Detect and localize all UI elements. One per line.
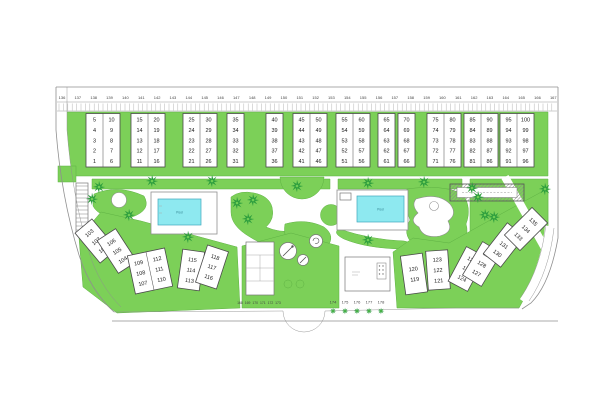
path-loop [112, 193, 127, 208]
unit-number: 100 [521, 118, 530, 124]
unit-block: 55545352516059585756 [336, 114, 370, 168]
unit-number: 69 [403, 128, 409, 134]
unit-number: 97 [522, 149, 528, 155]
parking-ticks [59, 104, 552, 111]
tree-icon [291, 180, 303, 192]
unit-blocks-top: 5432110987615141312112019181716252423222… [86, 114, 534, 168]
pond-circle [430, 202, 439, 211]
unit-number: 39 [271, 128, 277, 134]
unit-number: 81 [469, 159, 475, 165]
unit-block: 6564636261 [378, 114, 395, 168]
unit-block: 4039383736 [266, 114, 283, 168]
unit-number: 46 [315, 159, 321, 165]
street-lot-number: 147 [233, 95, 240, 100]
unit-block: 54321109876 [86, 114, 120, 168]
unit-number: 9 [110, 128, 113, 134]
unit-number: 37 [271, 149, 277, 155]
unit-number: 93 [505, 138, 511, 144]
street-lot-number: 167 [550, 95, 557, 100]
street-lot-number: 150 [281, 95, 288, 100]
unit-number: 83 [469, 138, 475, 144]
street-lot-number: 157 [391, 95, 398, 100]
unit-number: 16 [153, 159, 159, 165]
unit-number: 45 [298, 118, 304, 124]
bottom-lot-number: 177 [366, 300, 373, 305]
unit-number: 61 [383, 159, 389, 165]
street-lot-number: 149 [265, 95, 272, 100]
street-lot-number: 146 [217, 95, 224, 100]
unit-number: 96 [522, 159, 528, 165]
tree-icon [93, 181, 105, 193]
tree-icon [362, 177, 374, 189]
unit-block: 75747372718079787776 [427, 114, 461, 168]
unit-number: 30 [205, 118, 211, 124]
unit-number: 55 [341, 118, 347, 124]
tree-icon [472, 191, 484, 203]
unit-number: 31 [232, 159, 238, 165]
unit-number: 32 [232, 149, 238, 155]
unit-number: 115 [188, 257, 198, 264]
unit-number: 1 [93, 159, 96, 165]
street-lot-number: 158 [407, 95, 414, 100]
unit-number: 120 [408, 266, 418, 273]
lawn-half-disc [280, 177, 324, 199]
unit-number: 27 [205, 149, 211, 155]
street-lot-number: 162 [471, 95, 478, 100]
unit-number: 36 [271, 159, 277, 165]
unit-number: 51 [341, 159, 347, 165]
street-lot-number: 139 [106, 95, 113, 100]
unit-number: 48 [315, 138, 321, 144]
street-lot-number: 148 [249, 95, 256, 100]
pool-right-label: Pool [377, 208, 384, 212]
unit-number: 14 [136, 128, 142, 134]
tree-icon [206, 175, 218, 187]
unit-number: 12 [136, 149, 142, 155]
unit-number: 28 [205, 138, 211, 144]
street-lot-number: 138 [90, 95, 97, 100]
street-lot-number: 161 [455, 95, 462, 100]
tree-icon [86, 193, 98, 205]
unit-number: 42 [298, 149, 304, 155]
unit-number: 91 [505, 159, 511, 165]
unit-block: 123122121 [426, 250, 451, 290]
bush-icon [284, 280, 292, 288]
unit-number: 80 [449, 118, 455, 124]
unit-number: 5 [93, 118, 96, 124]
bottom-lot-number: 171 [260, 301, 266, 305]
unit-block: 959493929110099989796 [500, 114, 534, 168]
unit-number: 11 [137, 159, 143, 165]
ramp-top-right [450, 184, 524, 201]
unit-number: 52 [341, 149, 347, 155]
unit-number: 92 [505, 149, 511, 155]
bottom-lot-number: 170 [252, 301, 258, 305]
unit-number: 94 [505, 128, 511, 134]
street-lot-number: 155 [360, 95, 367, 100]
unit-number: 74 [432, 128, 438, 134]
unit-number: 50 [315, 118, 321, 124]
unit-block: 15141312112019181716 [131, 114, 165, 168]
unit-block: 3534333231 [227, 114, 244, 168]
unit-number: 119 [410, 277, 420, 284]
unit-number: 113 [185, 278, 195, 285]
unit-number: 114 [186, 267, 196, 274]
bottom-lot-number: 169 [245, 301, 251, 305]
unit-number: 60 [358, 118, 364, 124]
unit-number: 90 [486, 118, 492, 124]
unit-number: 23 [188, 138, 194, 144]
unit-block: 25242322213029282726 [183, 114, 217, 168]
unit-number: 25 [188, 118, 194, 124]
tree-icon [539, 183, 551, 195]
unit-number: 54 [341, 128, 347, 134]
tree-icon [146, 175, 158, 187]
tree-icon [242, 213, 254, 225]
unit-number: 86 [486, 159, 492, 165]
unit-number: 4 [93, 128, 96, 134]
unit-number: 15 [136, 118, 142, 124]
unit-number: 53 [341, 138, 347, 144]
street-lot-number: 159 [423, 95, 430, 100]
street-lot-number: 156 [376, 95, 383, 100]
unit-number: 89 [486, 128, 492, 134]
tree-icon [342, 308, 349, 315]
unit-number: 43 [298, 138, 304, 144]
unit-number: 49 [315, 128, 321, 134]
tree-icon [488, 211, 500, 223]
unit-number: 41 [298, 159, 304, 165]
unit-number: 38 [271, 138, 277, 144]
unit-number: 33 [232, 138, 238, 144]
tree-icon [466, 182, 478, 194]
tree-icon [123, 209, 135, 221]
unit-number: 13 [136, 138, 142, 144]
bush-icon [296, 280, 304, 288]
street-lot-number: 163 [487, 95, 494, 100]
unit-number: 68 [403, 138, 409, 144]
tree-icon [231, 197, 243, 209]
tree-icon [330, 308, 337, 315]
tree-icon [182, 231, 194, 243]
unit-number: 62 [383, 149, 389, 155]
unit-block: 45444342415049484746 [293, 114, 327, 168]
tree-icon [354, 308, 361, 315]
site-plan-drawing: 1361371381391401411421431441451461471481… [0, 0, 600, 400]
unit-number: 22 [188, 149, 194, 155]
unit-number: 79 [449, 128, 455, 134]
street-lot-number: 152 [312, 95, 319, 100]
unit-number: 70 [403, 118, 409, 124]
unit-number: 21 [188, 159, 194, 165]
unit-number: 44 [298, 128, 304, 134]
bottom-lot-number: 174 [330, 300, 337, 305]
unit-number: 78 [449, 138, 455, 144]
unit-number: 98 [522, 138, 528, 144]
bottom-lot-number: 176 [354, 300, 361, 305]
unit-block: 7069686766 [398, 114, 415, 168]
unit-block: 109108107112111110 [127, 248, 172, 294]
unit-number: 75 [432, 118, 438, 124]
tree-icon [247, 194, 259, 206]
unit-number: 71 [432, 159, 438, 165]
unit-number: 26 [205, 159, 211, 165]
street-lot-number: 160 [439, 95, 446, 100]
tree-icon [378, 308, 385, 315]
street-lot-number: 164 [502, 95, 509, 100]
bottom-lot-number: 173 [275, 301, 281, 305]
unit-number: 58 [358, 138, 364, 144]
unit-number: 65 [383, 118, 389, 124]
unit-number: 82 [469, 149, 475, 155]
unit-number: 123 [433, 257, 443, 264]
unit-number: 20 [153, 118, 159, 124]
unit-number: 10 [108, 118, 114, 124]
street-lot-number: 143 [170, 95, 177, 100]
unit-number: 88 [486, 138, 492, 144]
unit-number: 7 [110, 149, 113, 155]
site-plan: 1361371381391401411421431441451461471481… [0, 0, 600, 400]
pool-house [340, 193, 351, 200]
unit-number: 17 [153, 149, 159, 155]
unit-number: 87 [486, 149, 492, 155]
tree-icon [479, 209, 491, 221]
street-lot-number: 153 [328, 95, 335, 100]
street-lot-number: 154 [344, 95, 351, 100]
street-lot-number: 151 [296, 95, 303, 100]
unit-number: 72 [432, 149, 438, 155]
lawn-strip-right [338, 179, 462, 189]
street-lot-number: 145 [201, 95, 208, 100]
unit-number: 3 [93, 138, 96, 144]
unit-number: 56 [358, 159, 364, 165]
unit-number: 95 [505, 118, 511, 124]
street-lot-number: 142 [154, 95, 161, 100]
unit-number: 77 [449, 149, 455, 155]
unit-number: 29 [205, 128, 211, 134]
unit-number: 24 [188, 128, 194, 134]
bottom-lot-number: 168 [237, 301, 243, 305]
bottom-lot-number: 175 [342, 300, 349, 305]
street-lot-number: 141 [138, 95, 145, 100]
pool-left-label: Pool [176, 211, 183, 215]
tree-icon [418, 176, 430, 188]
unit-number: 2 [93, 149, 96, 155]
unit-number: 18 [153, 138, 159, 144]
unit-number: 8 [110, 138, 113, 144]
unit-number: 66 [403, 159, 409, 165]
street-lot-number: 166 [534, 95, 541, 100]
unit-number: 57 [358, 149, 364, 155]
unit-number: 59 [358, 128, 364, 134]
bottom-lot-number: 172 [268, 301, 274, 305]
street-lot-number: 144 [185, 95, 192, 100]
unit-number: 47 [315, 149, 321, 155]
unit-number: 19 [153, 128, 159, 134]
unit-number: 40 [271, 118, 277, 124]
unit-number: 76 [449, 159, 455, 165]
street-lot-numbers: 1361371381391401411421431441451461471481… [59, 95, 558, 100]
unit-number: 99 [522, 128, 528, 134]
street-lot-number: 137 [74, 95, 81, 100]
street-lot-number: 140 [122, 95, 129, 100]
unit-number: 85 [469, 118, 475, 124]
lawn-leaf-right [336, 229, 411, 249]
utility-building [345, 257, 390, 291]
tree-icon [366, 308, 373, 315]
unit-number: 67 [403, 149, 409, 155]
unit-number: 121 [434, 278, 444, 285]
unit-number: 122 [433, 268, 443, 275]
unit-number: 6 [110, 159, 113, 165]
street-lot-number: 165 [518, 95, 525, 100]
tennis-court [246, 242, 274, 295]
unit-number: 63 [383, 138, 389, 144]
unit-number: 84 [469, 128, 475, 134]
unit-number: 64 [383, 128, 389, 134]
tree-icon [362, 234, 374, 246]
unit-block: 85848382819089888786 [464, 114, 498, 168]
street-lot-number: 136 [59, 95, 66, 100]
bottom-lot-number: 178 [378, 300, 385, 305]
unit-number: 35 [232, 118, 238, 124]
unit-number: 34 [232, 128, 238, 134]
unit-number: 73 [432, 138, 438, 144]
